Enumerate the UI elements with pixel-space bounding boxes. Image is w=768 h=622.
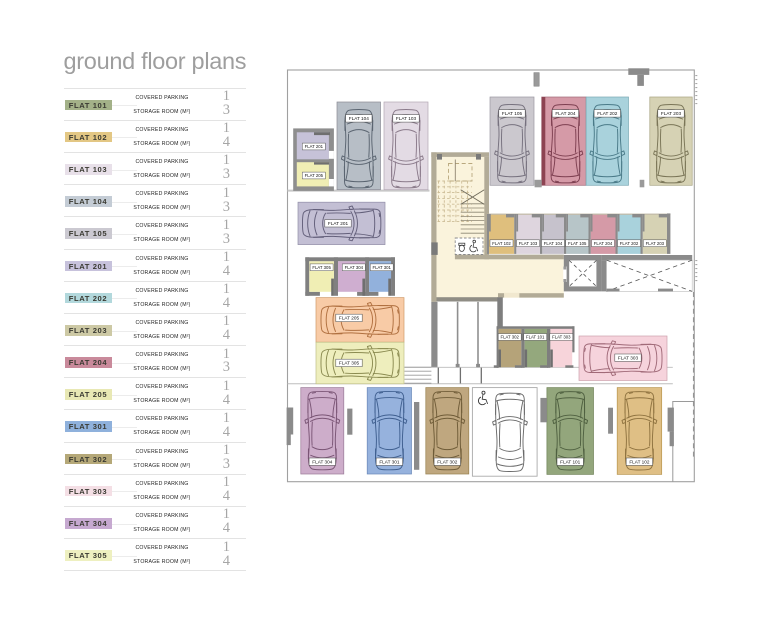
svg-text:FLAT 103: FLAT 103	[519, 241, 538, 246]
svg-text:FLAT 102: FLAT 102	[492, 241, 511, 246]
svg-text:FLAT 301: FLAT 301	[372, 265, 391, 270]
svg-text:FLAT 204: FLAT 204	[555, 111, 576, 116]
svg-text:FLAT 303: FLAT 303	[618, 356, 639, 361]
svg-text:FLAT 103: FLAT 103	[396, 116, 417, 121]
svg-text:FLAT 104: FLAT 104	[349, 116, 370, 121]
svg-text:FLAT 205: FLAT 205	[305, 173, 324, 178]
svg-text:FLAT 205: FLAT 205	[339, 316, 360, 321]
svg-text:FLAT 304: FLAT 304	[312, 460, 333, 465]
svg-text:FLAT 305: FLAT 305	[339, 361, 360, 366]
svg-text:FLAT 302: FLAT 302	[437, 460, 458, 465]
svg-text:FLAT 102: FLAT 102	[629, 460, 650, 465]
svg-text:FLAT 101: FLAT 101	[526, 335, 545, 340]
svg-text:FLAT 203: FLAT 203	[661, 111, 682, 116]
svg-text:FLAT 202: FLAT 202	[620, 241, 639, 246]
svg-text:FLAT 203: FLAT 203	[646, 241, 665, 246]
svg-text:FLAT 301: FLAT 301	[379, 460, 400, 465]
svg-text:FLAT 305: FLAT 305	[312, 265, 331, 270]
svg-text:FLAT 201: FLAT 201	[305, 144, 324, 149]
svg-text:FLAT 105: FLAT 105	[502, 111, 523, 116]
svg-text:FLAT 304: FLAT 304	[345, 265, 364, 270]
svg-text:FLAT 201: FLAT 201	[328, 221, 349, 226]
svg-text:FLAT 101: FLAT 101	[560, 460, 581, 465]
svg-text:FLAT 202: FLAT 202	[597, 111, 618, 116]
svg-text:FLAT 303: FLAT 303	[552, 335, 571, 340]
svg-text:FLAT 204: FLAT 204	[594, 241, 613, 246]
svg-text:FLAT 104: FLAT 104	[544, 241, 563, 246]
svg-text:FLAT 302: FLAT 302	[500, 335, 519, 340]
svg-text:FLAT 105: FLAT 105	[568, 241, 587, 246]
